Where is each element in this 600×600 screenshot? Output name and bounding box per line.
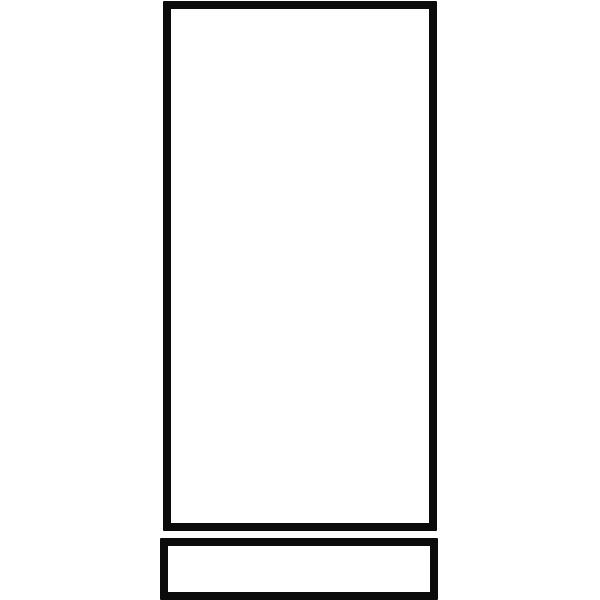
tall-frame-rectangle [163, 1, 437, 531]
base-rectangle [160, 538, 438, 600]
drawing-canvas [0, 0, 600, 600]
